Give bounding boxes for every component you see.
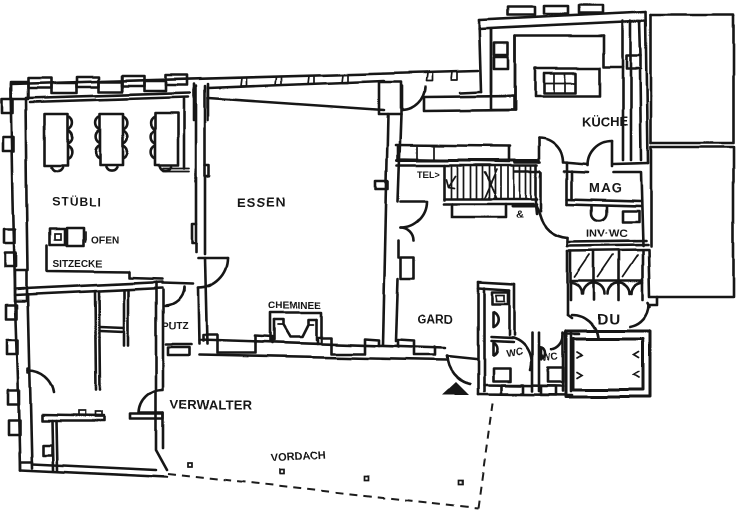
svg-text:OFEN: OFEN [91,235,119,246]
svg-text:CHEMINEE: CHEMINEE [268,301,321,312]
svg-text:TEL>: TEL> [417,169,439,179]
svg-text:PUTZ: PUTZ [162,321,188,332]
svg-text:SITZECKE: SITZECKE [53,259,103,270]
svg-text:MAG: MAG [589,180,622,195]
svg-text:GARD: GARD [418,313,454,327]
svg-text:INV·WC: INV·WC [587,228,627,240]
svg-text:&: & [516,209,524,221]
svg-text:KÜCHE: KÜCHE [582,114,629,129]
svg-text:STÜBLI: STÜBLI [52,194,101,209]
svg-text:WC: WC [541,352,559,365]
svg-text:WC: WC [505,347,523,360]
svg-text:ESSEN: ESSEN [237,195,286,210]
svg-text:VERWALTER: VERWALTER [170,397,253,412]
svg-text:DU: DU [597,311,621,328]
